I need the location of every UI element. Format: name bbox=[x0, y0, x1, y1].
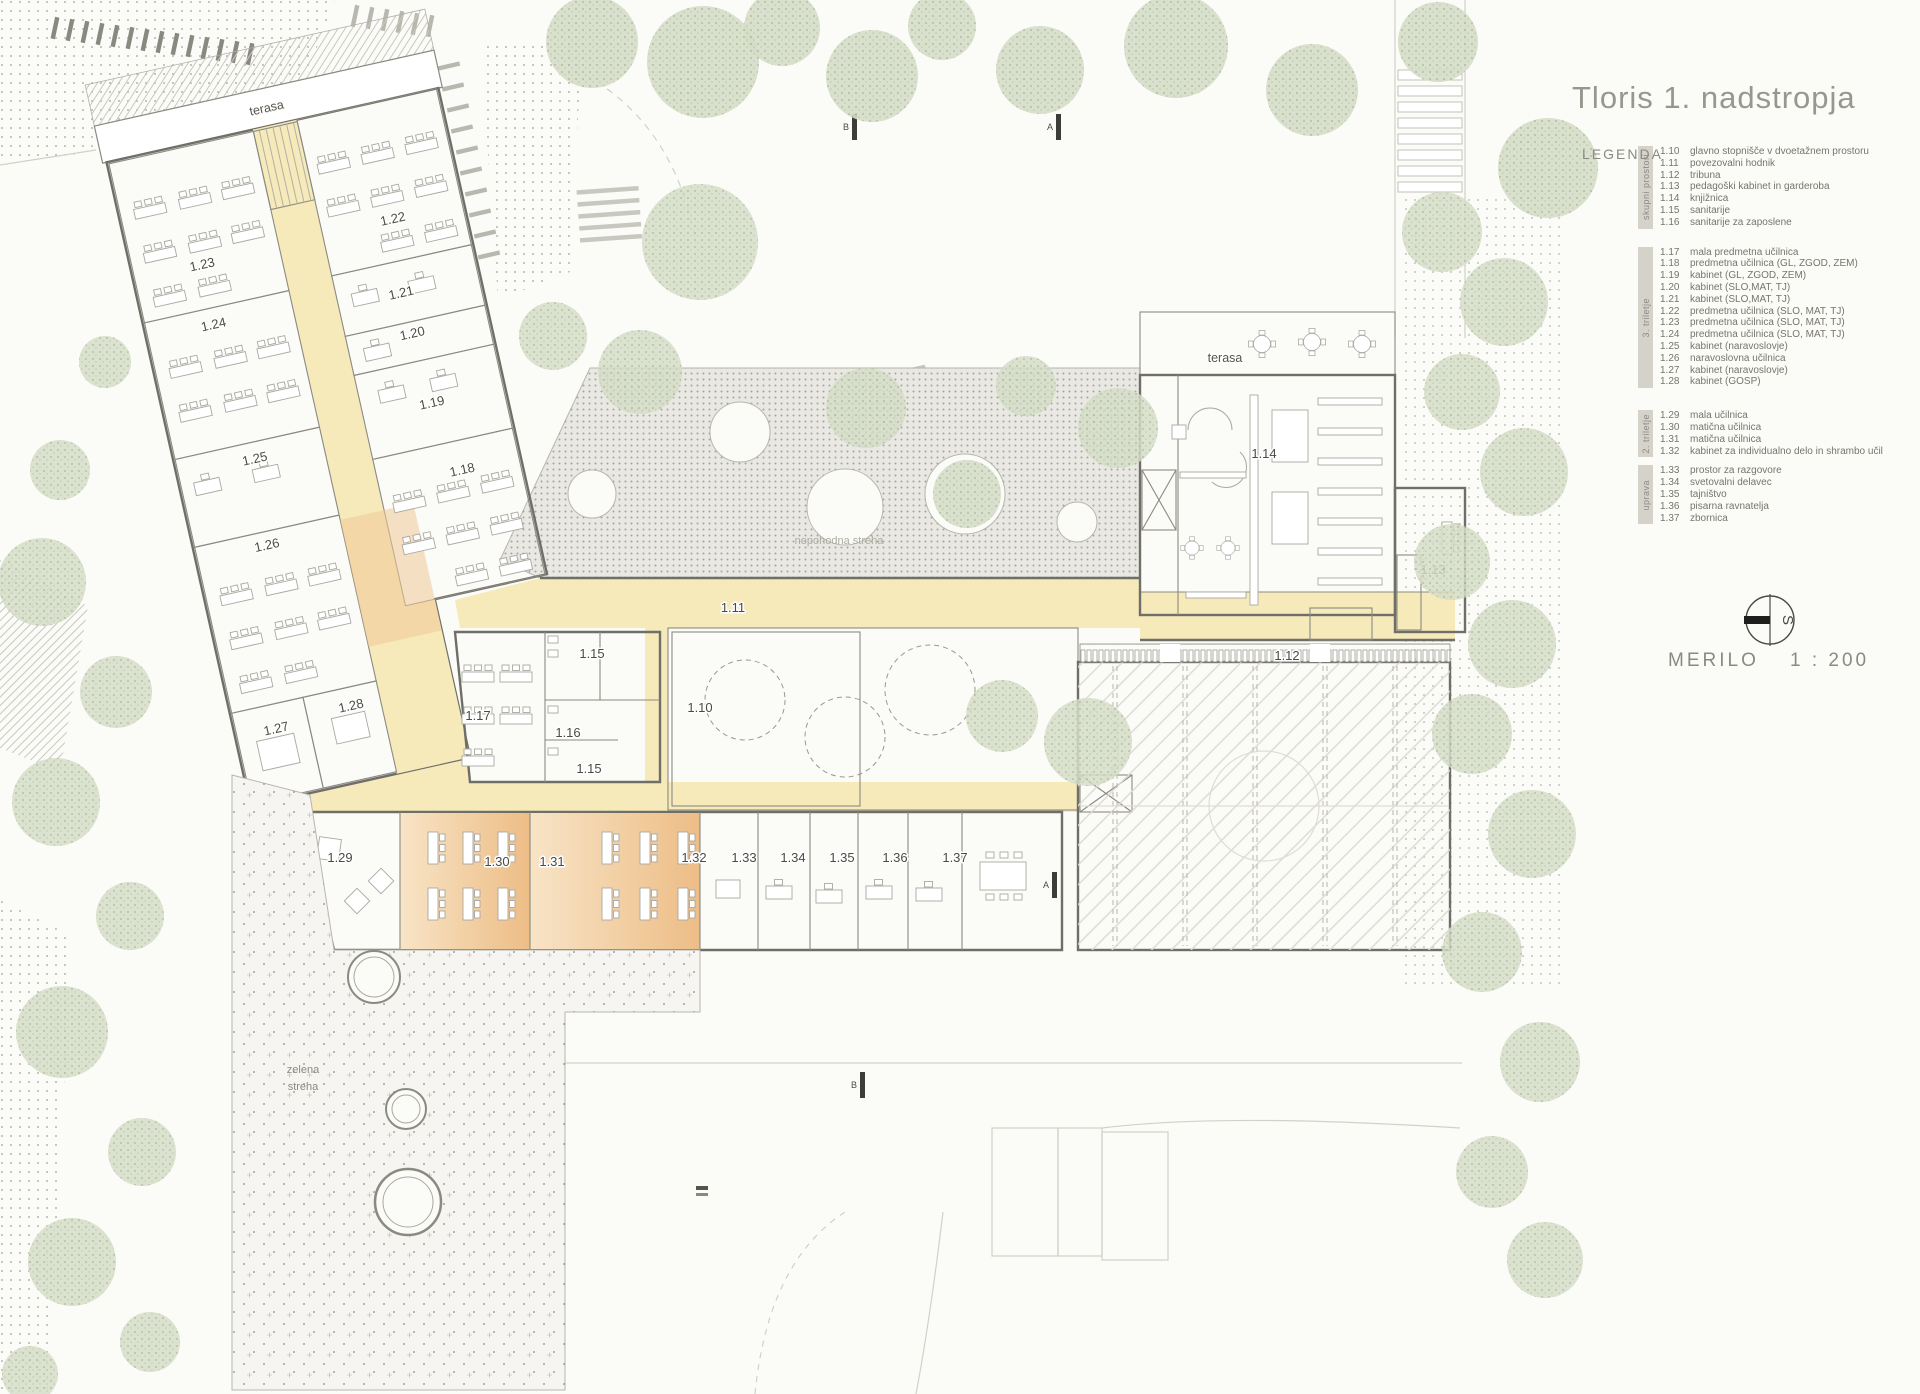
legend-item: 1.16sanitarije za zaposlene bbox=[1660, 217, 1917, 229]
legend-item: 1.37zbornica bbox=[1660, 513, 1917, 525]
legend-item: 1.13pedagoški kabinet in garderoba bbox=[1660, 181, 1917, 193]
room-label-1-16: 1.16 bbox=[555, 725, 580, 740]
room-label-1-14: 1.14 bbox=[1251, 446, 1276, 461]
legend-group-strip: skupni prostori bbox=[1638, 146, 1653, 229]
room-label-1-33: 1.33 bbox=[731, 850, 756, 865]
room-label-1-26: 1.26 bbox=[253, 535, 281, 555]
legend-item: 1.11povezovalni hodnik bbox=[1660, 158, 1917, 170]
room-label-1-24: 1.24 bbox=[199, 314, 227, 334]
green-roof-label-1: zelena bbox=[287, 1064, 320, 1076]
room-label-1-20: 1.20 bbox=[398, 323, 426, 343]
room-label-1-17: 1.17 bbox=[465, 708, 490, 723]
legend-item: 1.36pisarna ravnatelja bbox=[1660, 501, 1917, 513]
room-label-1-30: 1.30 bbox=[484, 854, 509, 869]
legend-item: 1.32kabinet za individualno delo in shra… bbox=[1660, 446, 1917, 458]
room-label-1-35: 1.35 bbox=[829, 850, 854, 865]
legend-group-strip: 3. triletje bbox=[1638, 247, 1653, 389]
legend-group-strip: uprava bbox=[1638, 465, 1653, 524]
room-label-1-32: 1.32 bbox=[681, 850, 706, 865]
tribuna-1-12 bbox=[1080, 644, 1450, 662]
centre-block: 1.17 1.15 1.16 1.15 bbox=[455, 632, 660, 782]
compass-north-letter: S bbox=[1779, 615, 1796, 625]
room-label-1-36: 1.36 bbox=[882, 850, 907, 865]
legend-item: 1.14knjižnica bbox=[1660, 193, 1917, 205]
legend-item: 1.35tajništvo bbox=[1660, 489, 1917, 501]
legend-item: 1.21kabinet (SLO,MAT, TJ) bbox=[1660, 294, 1917, 306]
legend-group-admin: uprava 1.33prostor za razgovore 1.34svet… bbox=[1638, 465, 1917, 524]
legend-item: 1.19kabinet (GL, ZGOD, ZEM) bbox=[1660, 270, 1917, 282]
room-label-1-18: 1.18 bbox=[448, 460, 476, 480]
room-label-1-22: 1.22 bbox=[379, 209, 407, 229]
gym-hall: 1.12 bbox=[1078, 644, 1450, 950]
room-1-31 bbox=[530, 813, 700, 949]
room-label-1-34: 1.34 bbox=[780, 850, 805, 865]
room-label-1-19: 1.19 bbox=[418, 393, 446, 413]
legend-item: 1.18predmetna učilnica (GL, ZGOD, ZEM) bbox=[1660, 258, 1917, 270]
scale-value: 1 : 200 bbox=[1790, 650, 1869, 671]
library-furniture bbox=[1172, 408, 1308, 598]
legend-item: 1.33prostor za razgovore bbox=[1660, 465, 1917, 477]
library-shelves bbox=[1318, 398, 1382, 585]
legend-item: 1.27kabinet (naravoslovje) bbox=[1660, 365, 1917, 377]
legend-item: 1.26naravoslovna učilnica bbox=[1660, 353, 1917, 365]
room-label-1-15b: 1.15 bbox=[576, 761, 601, 776]
legend-item: 1.31matična učilnica bbox=[1660, 434, 1917, 446]
legend-group-common: skupni prostori 1.10glavno stopnišče v d… bbox=[1638, 146, 1917, 229]
legend-item: 1.12tribuna bbox=[1660, 170, 1917, 182]
green-roof-label-2: streha bbox=[288, 1081, 319, 1093]
page-title: Tloris 1. nadstropja bbox=[1572, 80, 1856, 116]
legend-item: 1.34svetovalni delavec bbox=[1660, 477, 1917, 489]
section-letter-b-top: B bbox=[843, 122, 849, 132]
crosswalk bbox=[1398, 70, 1462, 192]
room-label-1-12: 1.12 bbox=[1274, 648, 1299, 663]
section-letter-a-bottom: A bbox=[1043, 880, 1049, 890]
section-letter-a-top: A bbox=[1047, 122, 1053, 132]
room-label-1-31: 1.31 bbox=[539, 854, 564, 869]
legend-item: 1.10glavno stopnišče v dvoetažnem prosto… bbox=[1660, 146, 1917, 158]
legend-item: 1.29mala učilnica bbox=[1660, 410, 1917, 422]
legend-item: 1.24predmetna učilnica (SLO, MAT, TJ) bbox=[1660, 329, 1917, 341]
room-label-1-21: 1.21 bbox=[387, 283, 415, 303]
section-letter-b-bottom: B bbox=[851, 1080, 857, 1090]
legend-item: 1.25kabinet (naravoslovje) bbox=[1660, 341, 1917, 353]
south-row: 1.29 1.30 1.31 1.32 1.33 1.34 1.35 1.36 … bbox=[302, 812, 1062, 950]
room-label-1-29: 1.29 bbox=[327, 850, 352, 865]
legend-item: 1.30matična učilnica bbox=[1660, 422, 1917, 434]
legend-group-triad3: 3. triletje 1.17mala predmetna učilnica … bbox=[1638, 247, 1917, 389]
room-1-20 bbox=[345, 305, 493, 375]
room-label-1-37: 1.37 bbox=[942, 850, 967, 865]
room-label-1-11: 1.11 bbox=[721, 600, 745, 615]
main-staircase bbox=[672, 632, 860, 806]
terrace-label-library: terasa bbox=[1208, 351, 1243, 365]
legend-group-strip: 2. triletje bbox=[1638, 410, 1653, 457]
legend-group-triad2: 2. triletje 1.29mala učilnica 1.30matičn… bbox=[1638, 410, 1917, 457]
legend-item: 1.28kabinet (GOSP) bbox=[1660, 376, 1917, 388]
room-label-1-10: 1.10 bbox=[687, 700, 712, 715]
roof-label: nepohodna streha bbox=[795, 535, 885, 547]
scale-label: MERILO bbox=[1668, 650, 1759, 671]
floor-plan-sheet: nepohodna streha 1.11 terasa bbox=[0, 0, 1920, 1394]
section-markers: B A A B bbox=[696, 114, 1061, 1196]
scale-block: S MERILO 1 : 200 bbox=[1668, 594, 1869, 671]
room-label-1-15: 1.15 bbox=[579, 646, 604, 661]
legend-item: 1.17mala predmetna učilnica bbox=[1660, 247, 1917, 259]
legend-item: 1.22predmetna učilnica (SLO, MAT, TJ) bbox=[1660, 306, 1917, 318]
legend-item: 1.23predmetna učilnica (SLO, MAT, TJ) bbox=[1660, 317, 1917, 329]
room-label-1-23: 1.23 bbox=[188, 254, 216, 274]
legend-item: 1.20kabinet (SLO,MAT, TJ) bbox=[1660, 282, 1917, 294]
legend-item: 1.15sanitarije bbox=[1660, 205, 1917, 217]
legend: LEGENDA skupni prostori 1.10glavno stopn… bbox=[1582, 146, 1917, 524]
